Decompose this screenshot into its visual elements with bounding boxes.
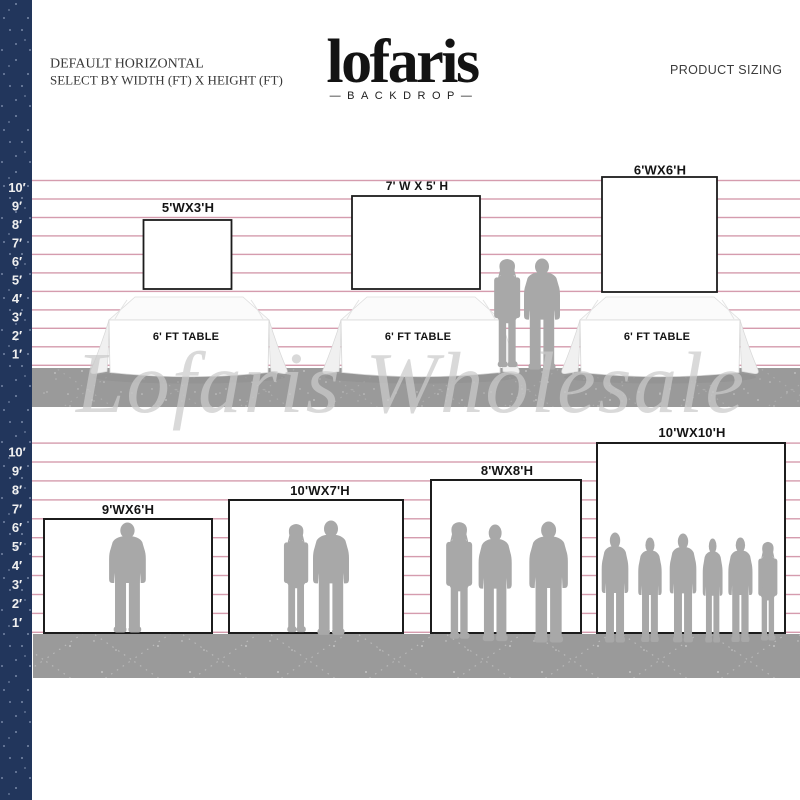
svg-text:10'WX7'H: 10'WX7'H xyxy=(290,483,350,498)
svg-text:2′: 2′ xyxy=(12,596,22,611)
svg-text:1′: 1′ xyxy=(12,346,22,361)
svg-text:1′: 1′ xyxy=(12,615,22,630)
svg-text:7′: 7′ xyxy=(12,235,22,250)
svg-text:SELECT BY WIDTH (FT) X HEIGHT: SELECT BY WIDTH (FT) X HEIGHT (FT) xyxy=(50,73,283,88)
svg-text:Lofaris Wholesale: Lofaris Wholesale xyxy=(74,334,744,431)
svg-text:4′: 4′ xyxy=(12,291,22,306)
svg-text:4′: 4′ xyxy=(12,558,22,573)
svg-text:PRODUCT SIZING: PRODUCT SIZING xyxy=(670,63,782,77)
svg-text:10′: 10′ xyxy=(8,180,26,195)
svg-text:—BACKDROP—: —BACKDROP— xyxy=(330,90,479,102)
svg-text:6′: 6′ xyxy=(12,254,22,269)
svg-text:8′: 8′ xyxy=(12,217,22,232)
svg-text:3′: 3′ xyxy=(12,309,22,324)
svg-text:6'WX6'H: 6'WX6'H xyxy=(634,163,686,178)
svg-text:3′: 3′ xyxy=(12,577,22,592)
svg-text:8'WX8'H: 8'WX8'H xyxy=(481,463,533,478)
svg-text:5′: 5′ xyxy=(12,539,22,554)
svg-text:9′: 9′ xyxy=(12,463,22,478)
svg-text:5′: 5′ xyxy=(12,272,22,287)
svg-text:2′: 2′ xyxy=(12,328,22,343)
svg-text:7' W X 5' H: 7' W X 5' H xyxy=(386,179,449,193)
svg-text:5'WX3'H: 5'WX3'H xyxy=(162,200,214,215)
svg-text:9'WX6'H: 9'WX6'H xyxy=(102,502,154,517)
svg-text:7′: 7′ xyxy=(12,501,22,516)
svg-text:10′: 10′ xyxy=(8,445,26,460)
svg-text:8′: 8′ xyxy=(12,482,22,497)
svg-text:9′: 9′ xyxy=(12,199,22,214)
svg-text:6′: 6′ xyxy=(12,520,22,535)
svg-text:DEFAULT HORIZONTAL: DEFAULT HORIZONTAL xyxy=(50,57,204,72)
svg-text:lofaris: lofaris xyxy=(326,28,479,96)
